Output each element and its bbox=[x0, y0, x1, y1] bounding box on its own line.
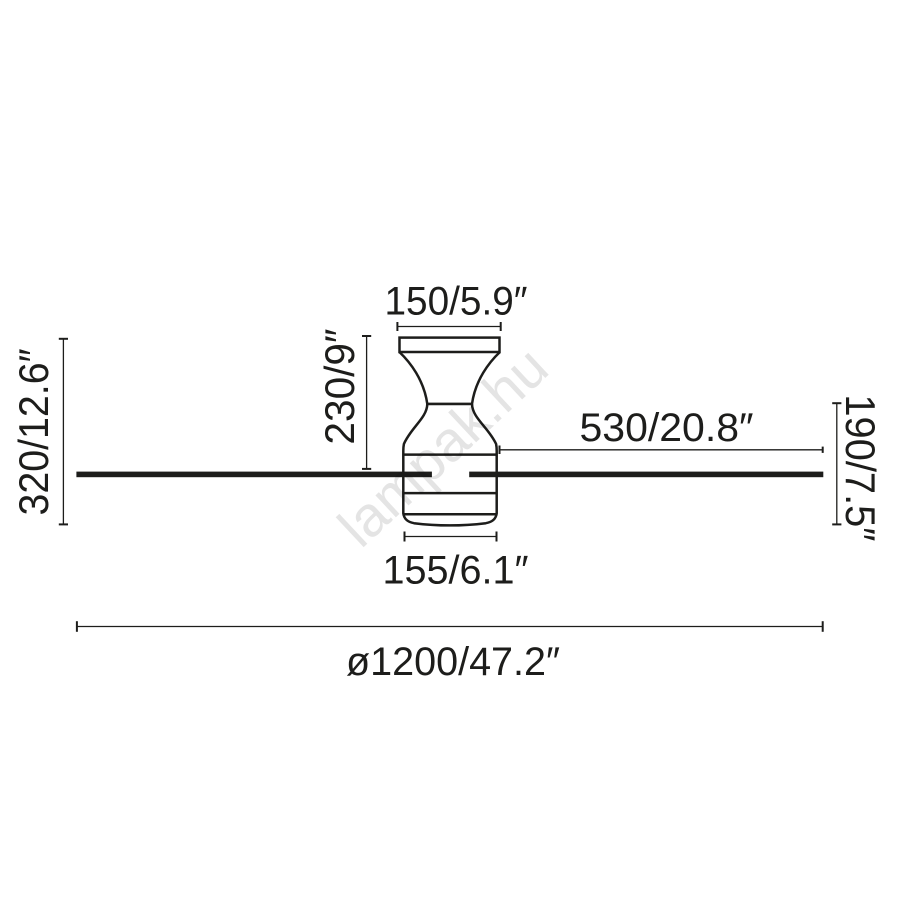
svg-text:530/20.8″: 530/20.8″ bbox=[580, 406, 754, 450]
svg-text:155/6.1″: 155/6.1″ bbox=[383, 549, 529, 593]
svg-text:320/12.6″: 320/12.6″ bbox=[10, 348, 57, 515]
svg-text:230/9″: 230/9″ bbox=[316, 328, 363, 444]
svg-text:ø1200/47.2″: ø1200/47.2″ bbox=[346, 640, 560, 684]
svg-text:190/7.5″: 190/7.5″ bbox=[837, 394, 884, 541]
svg-text:150/5.9″: 150/5.9″ bbox=[385, 280, 528, 324]
